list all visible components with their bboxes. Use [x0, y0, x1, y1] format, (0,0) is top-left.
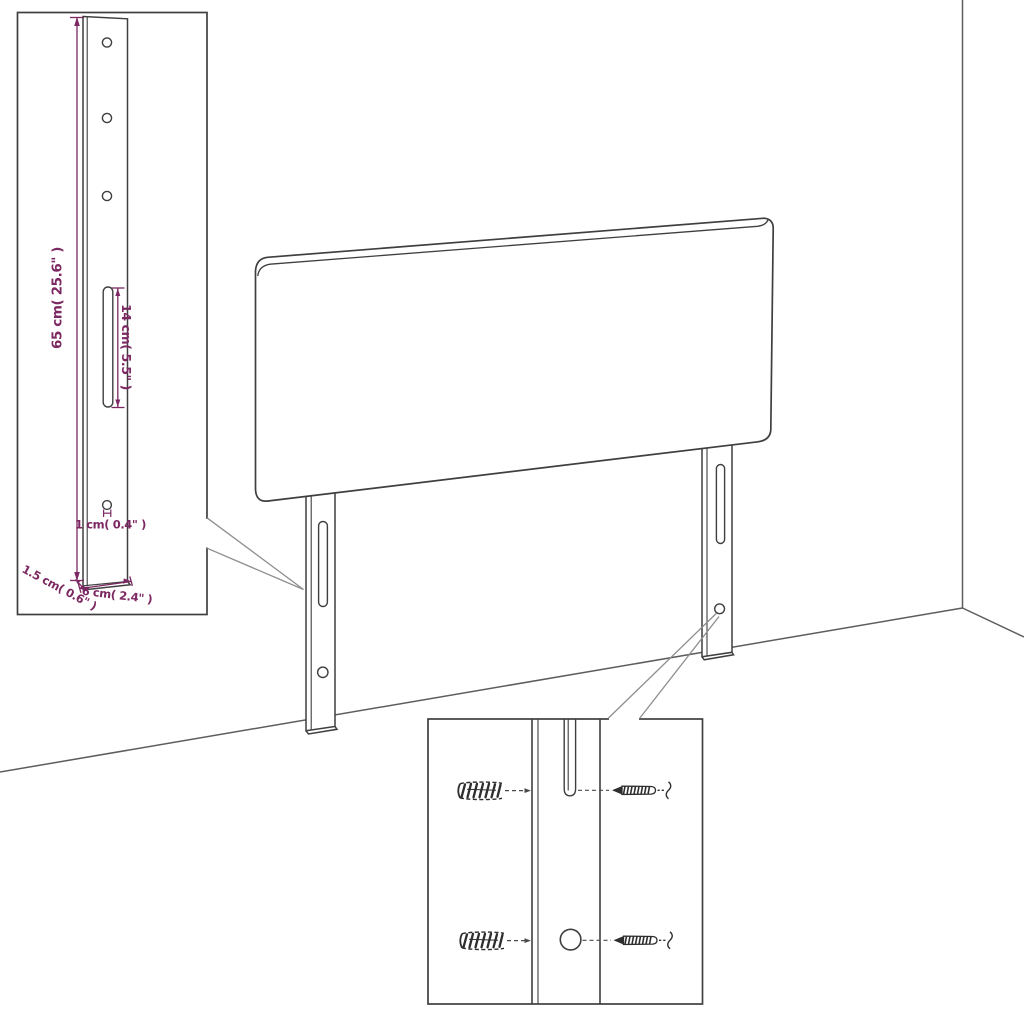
headboard-assembly-diagram: 65 cm( 25.6" ) 14 cm( 5.5" ) 1 cm( 0.4" … — [0, 0, 1024, 1024]
leader-lines-left-inset — [207, 518, 304, 590]
leg-detail-drawing — [83, 17, 130, 590]
dim-label-hole: 1 cm( 0.4" ) — [75, 518, 146, 532]
mounting-detail-inset — [428, 719, 703, 1004]
floor-line-right — [963, 608, 1024, 637]
mounting-detail-box — [428, 719, 703, 1004]
right-leg — [702, 430, 734, 660]
diagram-stage: 65 cm( 25.6" ) 14 cm( 5.5" ) 1 cm( 0.4" … — [0, 0, 1024, 1024]
dim-label-height: 65 cm( 25.6" ) — [50, 247, 66, 349]
leg-detail-inset: 65 cm( 25.6" ) 14 cm( 5.5" ) 1 cm( 0.4" … — [18, 13, 208, 615]
headboard-outline — [256, 218, 774, 501]
left-leg-body — [306, 478, 335, 731]
headboard-panel — [256, 218, 774, 501]
leg-detail-outline — [83, 17, 130, 590]
dim-label-slot: 14 cm( 5.5" ) — [119, 304, 134, 390]
left-leg — [306, 478, 337, 734]
